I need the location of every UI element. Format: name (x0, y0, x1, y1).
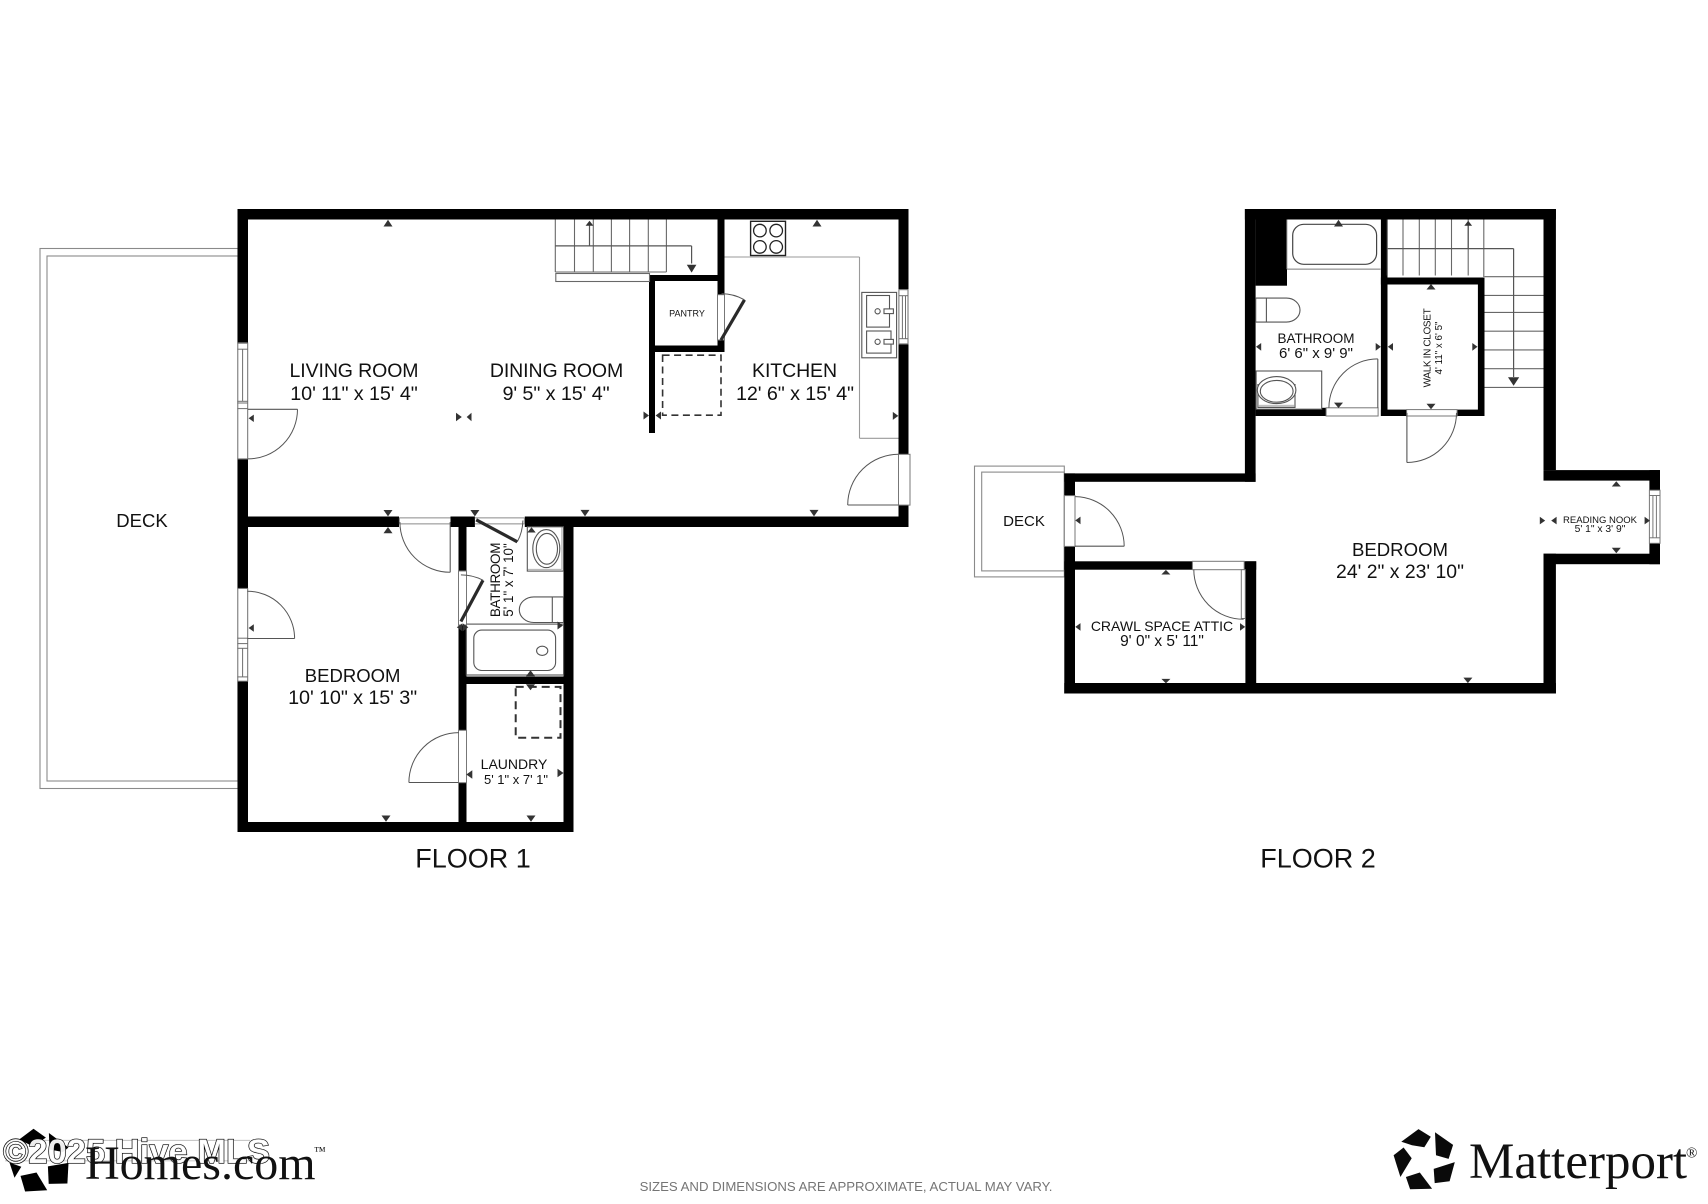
svg-text:4' 11" x 6' 5": 4' 11" x 6' 5" (1434, 321, 1445, 375)
svg-text:5' 1" x 7' 1": 5' 1" x 7' 1" (484, 772, 548, 787)
svg-text:LAUNDRY: LAUNDRY (481, 756, 548, 772)
svg-text:DECK: DECK (1003, 513, 1045, 530)
svg-text:KITCHEN: KITCHEN (752, 360, 837, 382)
svg-text:®: ® (1686, 1146, 1697, 1162)
svg-text:10' 10" x 15' 3": 10' 10" x 15' 3" (288, 687, 417, 709)
svg-text:PANTRY: PANTRY (669, 309, 705, 319)
svg-text:Matterport: Matterport (1469, 1134, 1687, 1190)
svg-text:24' 2" x 23' 10": 24' 2" x 23' 10" (1336, 561, 1464, 583)
svg-text:5' 1" x 7' 10": 5' 1" x 7' 10" (501, 543, 516, 617)
svg-text:Homes.com: Homes.com (85, 1137, 316, 1190)
svg-text:DECK: DECK (116, 510, 168, 531)
svg-text:DINING ROOM: DINING ROOM (490, 360, 623, 382)
svg-text:™: ™ (314, 1144, 326, 1158)
svg-text:6' 6" x 9' 9": 6' 6" x 9' 9" (1279, 345, 1353, 362)
svg-text:WALK IN CLOSET: WALK IN CLOSET (1423, 308, 1434, 387)
svg-text:10' 11" x 15' 4": 10' 11" x 15' 4" (290, 383, 417, 405)
svg-text:SIZES AND DIMENSIONS ARE APPRO: SIZES AND DIMENSIONS ARE APPROXIMATE, AC… (640, 1179, 1053, 1194)
svg-text:LIVING ROOM: LIVING ROOM (290, 360, 419, 382)
svg-text:12' 6" x 15' 4": 12' 6" x 15' 4" (736, 383, 854, 405)
svg-text:9' 5" x 15' 4": 9' 5" x 15' 4" (502, 383, 609, 405)
svg-text:FLOOR 1: FLOOR 1 (415, 844, 531, 874)
svg-text:FLOOR 2: FLOOR 2 (1260, 844, 1376, 874)
svg-text:9' 0" x 5' 11": 9' 0" x 5' 11" (1120, 633, 1204, 650)
svg-text:BEDROOM: BEDROOM (1352, 539, 1448, 560)
svg-text:BEDROOM: BEDROOM (305, 665, 401, 686)
svg-text:BATHROOM: BATHROOM (1278, 331, 1355, 346)
svg-text:5' 1" x 3' 9": 5' 1" x 3' 9" (1575, 524, 1626, 535)
svg-text:CRAWL SPACE ATTIC: CRAWL SPACE ATTIC (1091, 618, 1233, 634)
